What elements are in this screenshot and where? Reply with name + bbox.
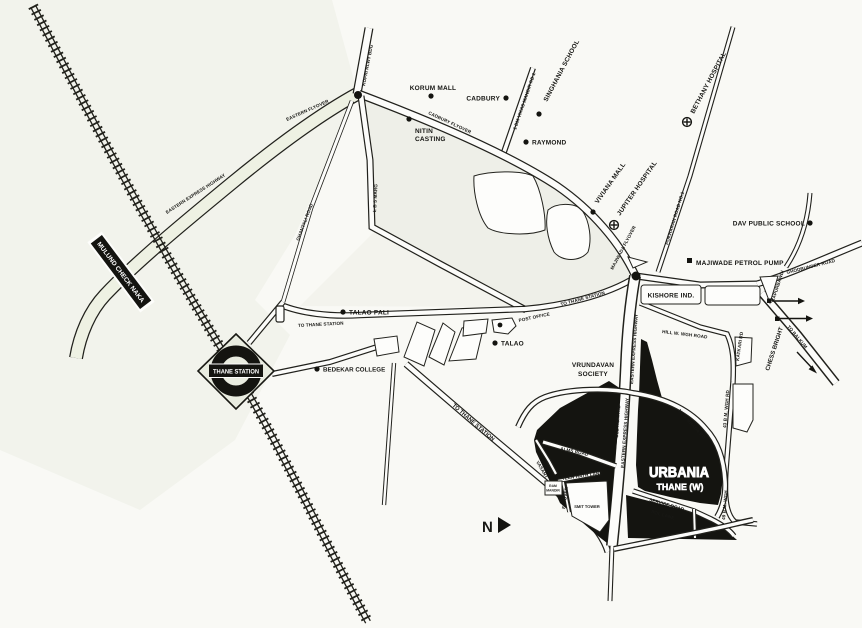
svg-text:BEDEKAR COLLEGE: BEDEKAR COLLEGE	[323, 367, 385, 374]
svg-text:KISHORE IND.: KISHORE IND.	[648, 293, 695, 300]
svg-text:CASTING: CASTING	[415, 136, 446, 143]
svg-text:URBANIA: URBANIA	[649, 465, 709, 481]
svg-text:TALAO: TALAO	[501, 341, 524, 348]
svg-text:TALAO PALI: TALAO PALI	[349, 310, 389, 317]
svg-text:THANE (W): THANE (W)	[657, 482, 704, 492]
svg-text:MAJIWADE PETROL PUMP: MAJIWADE PETROL PUMP	[696, 260, 784, 267]
svg-text:THANE STATION: THANE STATION	[213, 369, 259, 376]
svg-text:RAYMOND: RAYMOND	[532, 140, 566, 147]
svg-text:N: N	[482, 519, 493, 536]
svg-text:DAV PUBLIC SCHOOL: DAV PUBLIC SCHOOL	[733, 221, 805, 228]
svg-text:RAM: RAM	[549, 484, 557, 488]
svg-text:SMIT TOWER: SMIT TOWER	[574, 504, 600, 509]
svg-text:MANDIR: MANDIR	[546, 489, 560, 493]
svg-text:CADBURY: CADBURY	[466, 96, 500, 103]
svg-text:VRUNDAVAN: VRUNDAVAN	[572, 362, 614, 369]
svg-text:NITIN: NITIN	[415, 128, 433, 135]
svg-text:SOCIETY: SOCIETY	[578, 371, 608, 378]
svg-text:KORUM MALL: KORUM MALL	[410, 85, 456, 92]
